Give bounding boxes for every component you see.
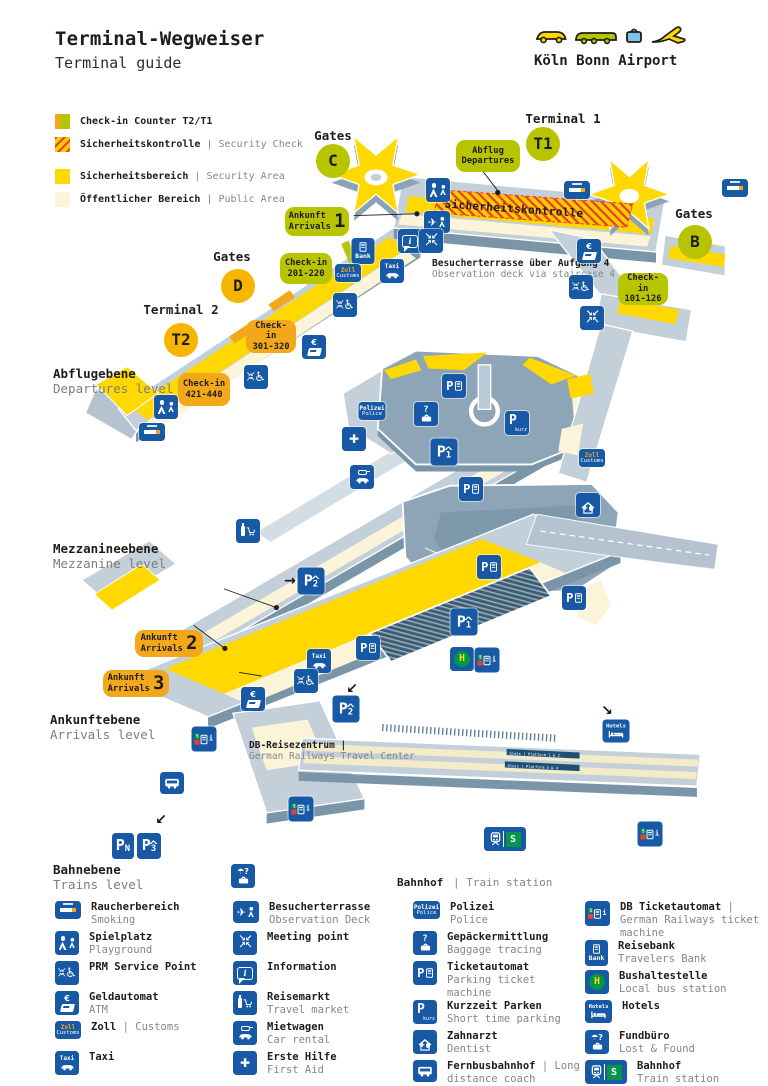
prm-service-point-icon: ↘↙↗↖♿ — [244, 365, 268, 389]
parking-ticket-machine-icon: P — [477, 555, 501, 579]
legend-item-prm: ↘↙↗↖♿PRM Service Point — [55, 961, 223, 991]
legend-item-label: PolizeiPolice — [450, 901, 494, 927]
control-tower — [478, 365, 490, 409]
legend-item-label: ReisebankTravelers Bank — [618, 940, 707, 966]
plane-icon — [650, 25, 688, 49]
legend-item-playground: SpielplatzPlayground — [55, 931, 223, 961]
parking-p2-sign: P2 — [298, 568, 325, 595]
local-bus-station-icon: H — [585, 970, 609, 994]
gates-c-label: Gates — [308, 128, 358, 143]
level-label-trains: BahnebeneTrains level — [53, 862, 143, 892]
legend-item-label: GepäckermittlungBaggage tracing — [447, 931, 548, 957]
car-rental-icon — [350, 465, 374, 489]
legend-item-label: Fernbusbahnhof | Long distance coach ter… — [447, 1060, 581, 1086]
terminal-map: Sicherheitskontrolle — [0, 100, 768, 900]
direction-arrow: → — [284, 574, 296, 588]
dentist-icon: ✚ — [576, 493, 600, 517]
legend-item-meeting: ↘↙↗↖Meeting point — [233, 931, 401, 961]
legend-item-label: BahnhofTrain station — [637, 1060, 719, 1086]
legend-item-label: DB Ticketautomat | German Railways ticke… — [620, 901, 765, 940]
first-aid-icon: ✚ — [342, 427, 366, 451]
legend-column-1: RaucherbereichSmokingSpielplatzPlaygroun… — [55, 901, 223, 1081]
callout-arrivals-2: AnkunftArrivals2 — [135, 630, 203, 657]
logo-transport-icons — [534, 27, 704, 49]
atm-icon: € — [302, 335, 326, 359]
terminal-1-badge: T1 — [526, 127, 560, 161]
legend-item-pkurz: PkurzKurzzeit ParkenShort time parking — [413, 1000, 581, 1030]
travel-market-icon — [236, 519, 260, 543]
prm-service-point-icon: ↘↙↗↖♿ — [55, 961, 79, 985]
legend-item-label: Zoll | Customs — [91, 1021, 180, 1034]
terminal-2-label: Terminal 2 — [136, 302, 226, 317]
gates-d-badge: D — [221, 269, 255, 303]
legend-item-label: Information — [267, 961, 337, 974]
page-title: Terminal-Wegweiser — [55, 28, 265, 50]
legend-item-mietwagen: MietwagenCar rental — [233, 1021, 401, 1051]
gates-c-badge: C — [316, 144, 350, 178]
callout-arrivals-3: AnkunftArrivals3 — [103, 670, 169, 697]
legend-column-2: ✈BesucherterrasseObservation Deck↘↙↗↖Mee… — [233, 901, 401, 1081]
hotels-icon: Hotels — [603, 720, 630, 743]
legend-item-dbauto: SiDB Ticketautomat | German Railways tic… — [585, 901, 765, 940]
parking-p1-sign: P1 — [431, 439, 458, 466]
legend-item-bank: BankReisebankTravelers Bank — [585, 940, 765, 970]
parking-ticket-machine-icon: P — [413, 961, 437, 985]
playground-icon — [426, 178, 450, 202]
smoking-icon — [722, 179, 748, 197]
taxi-icon: Taxi — [55, 1051, 79, 1075]
legend-item-observation: ✈BesucherterrasseObservation Deck — [233, 901, 401, 931]
lost-and-found-icon: ☂? — [585, 1030, 609, 1054]
bus-icon — [574, 29, 618, 49]
prm-service-point-icon: ↘↙↗↖♿ — [333, 293, 357, 317]
db-ticket-machine-icon: Si — [475, 648, 500, 673]
smoking-icon — [564, 181, 590, 199]
db-travel-center-note: DB-Reisezentrum |German Railways Travel … — [249, 740, 415, 762]
atm-icon: € — [241, 687, 265, 711]
first-aid-icon: ✚ — [233, 1051, 257, 1075]
callout-checkin-301-320: Check-in301-320 — [246, 320, 296, 353]
level-label-arrivals: AnkunftebeneArrivals level — [50, 712, 155, 742]
parking-pn-sign: PN — [112, 833, 134, 859]
legend-item-fundbuero: ☂?FundbüroLost & Found — [585, 1030, 765, 1060]
db-ticket-machine-icon: Si — [192, 727, 217, 752]
legend-item-label: Kurzzeit ParkenShort time parking — [447, 1000, 561, 1026]
lost-and-found-icon: ☂? — [231, 864, 255, 888]
parking-deck-p1 — [378, 351, 587, 472]
airport-name: Köln Bonn Airport — [534, 53, 704, 69]
smoking-icon — [55, 901, 81, 919]
baggage-tracing-icon: ? — [414, 402, 438, 426]
legend-item-bahnhof: SBahnhofTrain station — [585, 1060, 765, 1086]
short-time-parking-icon: Pkurz — [505, 411, 529, 435]
db-ticket-machine-icon: Si — [585, 901, 610, 926]
baggage-tracing-icon: ? — [413, 931, 437, 955]
travelers-bank-icon: Bank — [352, 238, 375, 264]
legend-item-zoll: ZollCustomsZoll | Customs — [55, 1021, 223, 1051]
car-icon — [534, 27, 568, 49]
legend-item-smoking: RaucherbereichSmoking — [55, 901, 223, 931]
legend-item-label: GeldautomatATM — [89, 991, 159, 1017]
callout-checkin-101-126: Check-in101-126 — [618, 273, 668, 305]
legend-item-label: SpielplatzPlayground — [89, 931, 152, 957]
legend-item-erstehilfe: ✚Erste HilfeFirst Aid — [233, 1051, 401, 1081]
travelers-bank-icon: Bank — [585, 940, 608, 966]
terminal-2-badge: T2 — [164, 323, 198, 357]
prm-service-point-icon: ↘↙↗↖♿ — [569, 275, 593, 299]
parking-ticket-machine-icon: P — [356, 636, 380, 660]
meeting-point-icon: ↘↙↗↖ — [580, 306, 604, 330]
gates-b-label: Gates — [668, 206, 720, 221]
customs-icon: ZollCustoms — [55, 1021, 81, 1039]
airport-logo: Köln Bonn Airport — [534, 27, 704, 69]
legend-item-atm: €GeldautomatATM — [55, 991, 223, 1021]
police-icon: PolizeiPolice — [413, 901, 440, 919]
direction-arrow: ↙ — [155, 813, 167, 827]
travel-market-icon — [233, 991, 257, 1015]
legend-item-label: RaucherbereichSmoking — [91, 901, 180, 927]
train-station-icon: S — [585, 1060, 627, 1084]
gates-b-badge: B — [678, 225, 712, 259]
direction-arrow: ↘ — [601, 704, 613, 718]
legend-item-zahnarzt: ✚ZahnarztDentist — [413, 1030, 581, 1060]
parking-p2-sign: P2 — [333, 696, 360, 723]
gates-d-label: Gates — [207, 249, 257, 264]
db-ticket-machine-icon: Si — [638, 822, 663, 847]
legend-item-pauto: PTicketautomatParking ticket machine — [413, 961, 581, 1000]
train-station-note: Bahnhof | Train station — [397, 871, 552, 890]
coach-terminal-icon — [160, 772, 184, 794]
legend-item-bus: Fernbusbahnhof | Long distance coach ter… — [413, 1060, 581, 1086]
atm-icon: € — [55, 991, 79, 1015]
legend-item-label: TicketautomatParking ticket machine — [447, 961, 581, 1000]
level-label-mezzanine: MezzanineebeneMezzanine level — [53, 541, 166, 571]
taxi-icon: Taxi — [380, 259, 404, 283]
db-ticket-machine-icon: Si — [289, 797, 314, 822]
playground-icon — [55, 931, 79, 955]
short-time-parking-icon: Pkurz — [413, 1000, 437, 1024]
callout-departures: AbflugDepartures — [456, 140, 520, 172]
train-station-icon: S — [484, 827, 526, 851]
legend-item-hotels: HotelsHotels — [585, 1000, 765, 1030]
legend-item-label: MietwagenCar rental — [267, 1021, 330, 1047]
legend-item-label: BesucherterrasseObservation Deck — [269, 901, 370, 927]
legend-column-4: SiDB Ticketautomat | German Railways tic… — [585, 901, 765, 1086]
information-icon: i — [233, 961, 257, 985]
legend-item-information: iInformation — [233, 961, 401, 991]
legend-item-label: FundbüroLost & Found — [619, 1030, 695, 1056]
bag-icon — [624, 25, 644, 49]
legend-item-bushalte: HBushaltestelleLocal bus station — [585, 970, 765, 1000]
legend-item-label: Taxi — [89, 1051, 114, 1064]
legend-item-label: PRM Service Point — [89, 961, 196, 974]
callout-checkin-421-440: Check-in421-440 — [178, 373, 230, 406]
callout-checkin-201-220: Check-in201-220 — [280, 253, 332, 284]
legend-item-label: ReisemarktTravel market — [267, 991, 349, 1017]
dentist-icon: ✚ — [413, 1030, 437, 1054]
parking-p3-sign: P3 — [137, 833, 161, 859]
meeting-point-icon: ↘↙↗↖ — [419, 229, 443, 253]
terminal-guide-poster: Terminal-Wegweiser Terminal guide Köln B… — [0, 0, 768, 1086]
parking-p1-sign: P1 — [451, 609, 478, 636]
direction-arrow: ↙ — [346, 682, 358, 696]
prm-service-point-icon: ↘↙↗↖♿ — [294, 669, 318, 693]
parking-ticket-machine-icon: P — [562, 586, 586, 610]
level-label-departures: AbflugebeneDepartures level — [53, 366, 173, 396]
police-icon: PolizeiPolice — [359, 402, 386, 420]
local-bus-station-icon: H — [450, 647, 474, 671]
legend-column-3: PolizeiPolicePolizeiPolice?Gepäckermittl… — [413, 901, 581, 1086]
customs-icon: ZollCustoms — [579, 449, 605, 467]
legend-item-label: ZahnarztDentist — [447, 1030, 498, 1056]
coach-terminal-icon — [413, 1060, 437, 1082]
legend-item-taxi: TaxiTaxi — [55, 1051, 223, 1081]
playground-icon — [154, 395, 178, 419]
callout-arrivals-1: AnkunftArrivals1 — [285, 207, 349, 236]
legend-item-reisemarkt: ReisemarktTravel market — [233, 991, 401, 1021]
customs-icon: ZollCustoms — [335, 264, 361, 282]
observation-deck-icon: ✈ — [233, 901, 259, 923]
hotels-icon: Hotels — [585, 1000, 612, 1023]
legend-item-gepaeck: ?GepäckermittlungBaggage tracing — [413, 931, 581, 961]
parking-ticket-machine-icon: P — [442, 374, 466, 398]
page-subtitle: Terminal guide — [55, 54, 181, 72]
legend-item-polizei: PolizeiPolicePolizeiPolice — [413, 901, 581, 931]
terminal-1-label: Terminal 1 — [518, 111, 608, 126]
legend-item-label: BushaltestelleLocal bus station — [619, 970, 726, 996]
meeting-point-icon: ↘↙↗↖ — [233, 931, 257, 955]
atm-icon: € — [577, 239, 601, 263]
legend-item-label: Meeting point — [267, 931, 349, 944]
smoking-icon — [139, 423, 165, 441]
legend-item-label: Hotels — [622, 1000, 660, 1013]
legend-item-label: Erste HilfeFirst Aid — [267, 1051, 337, 1077]
parking-ticket-machine-icon: P — [459, 477, 483, 501]
car-rental-icon — [233, 1021, 257, 1045]
